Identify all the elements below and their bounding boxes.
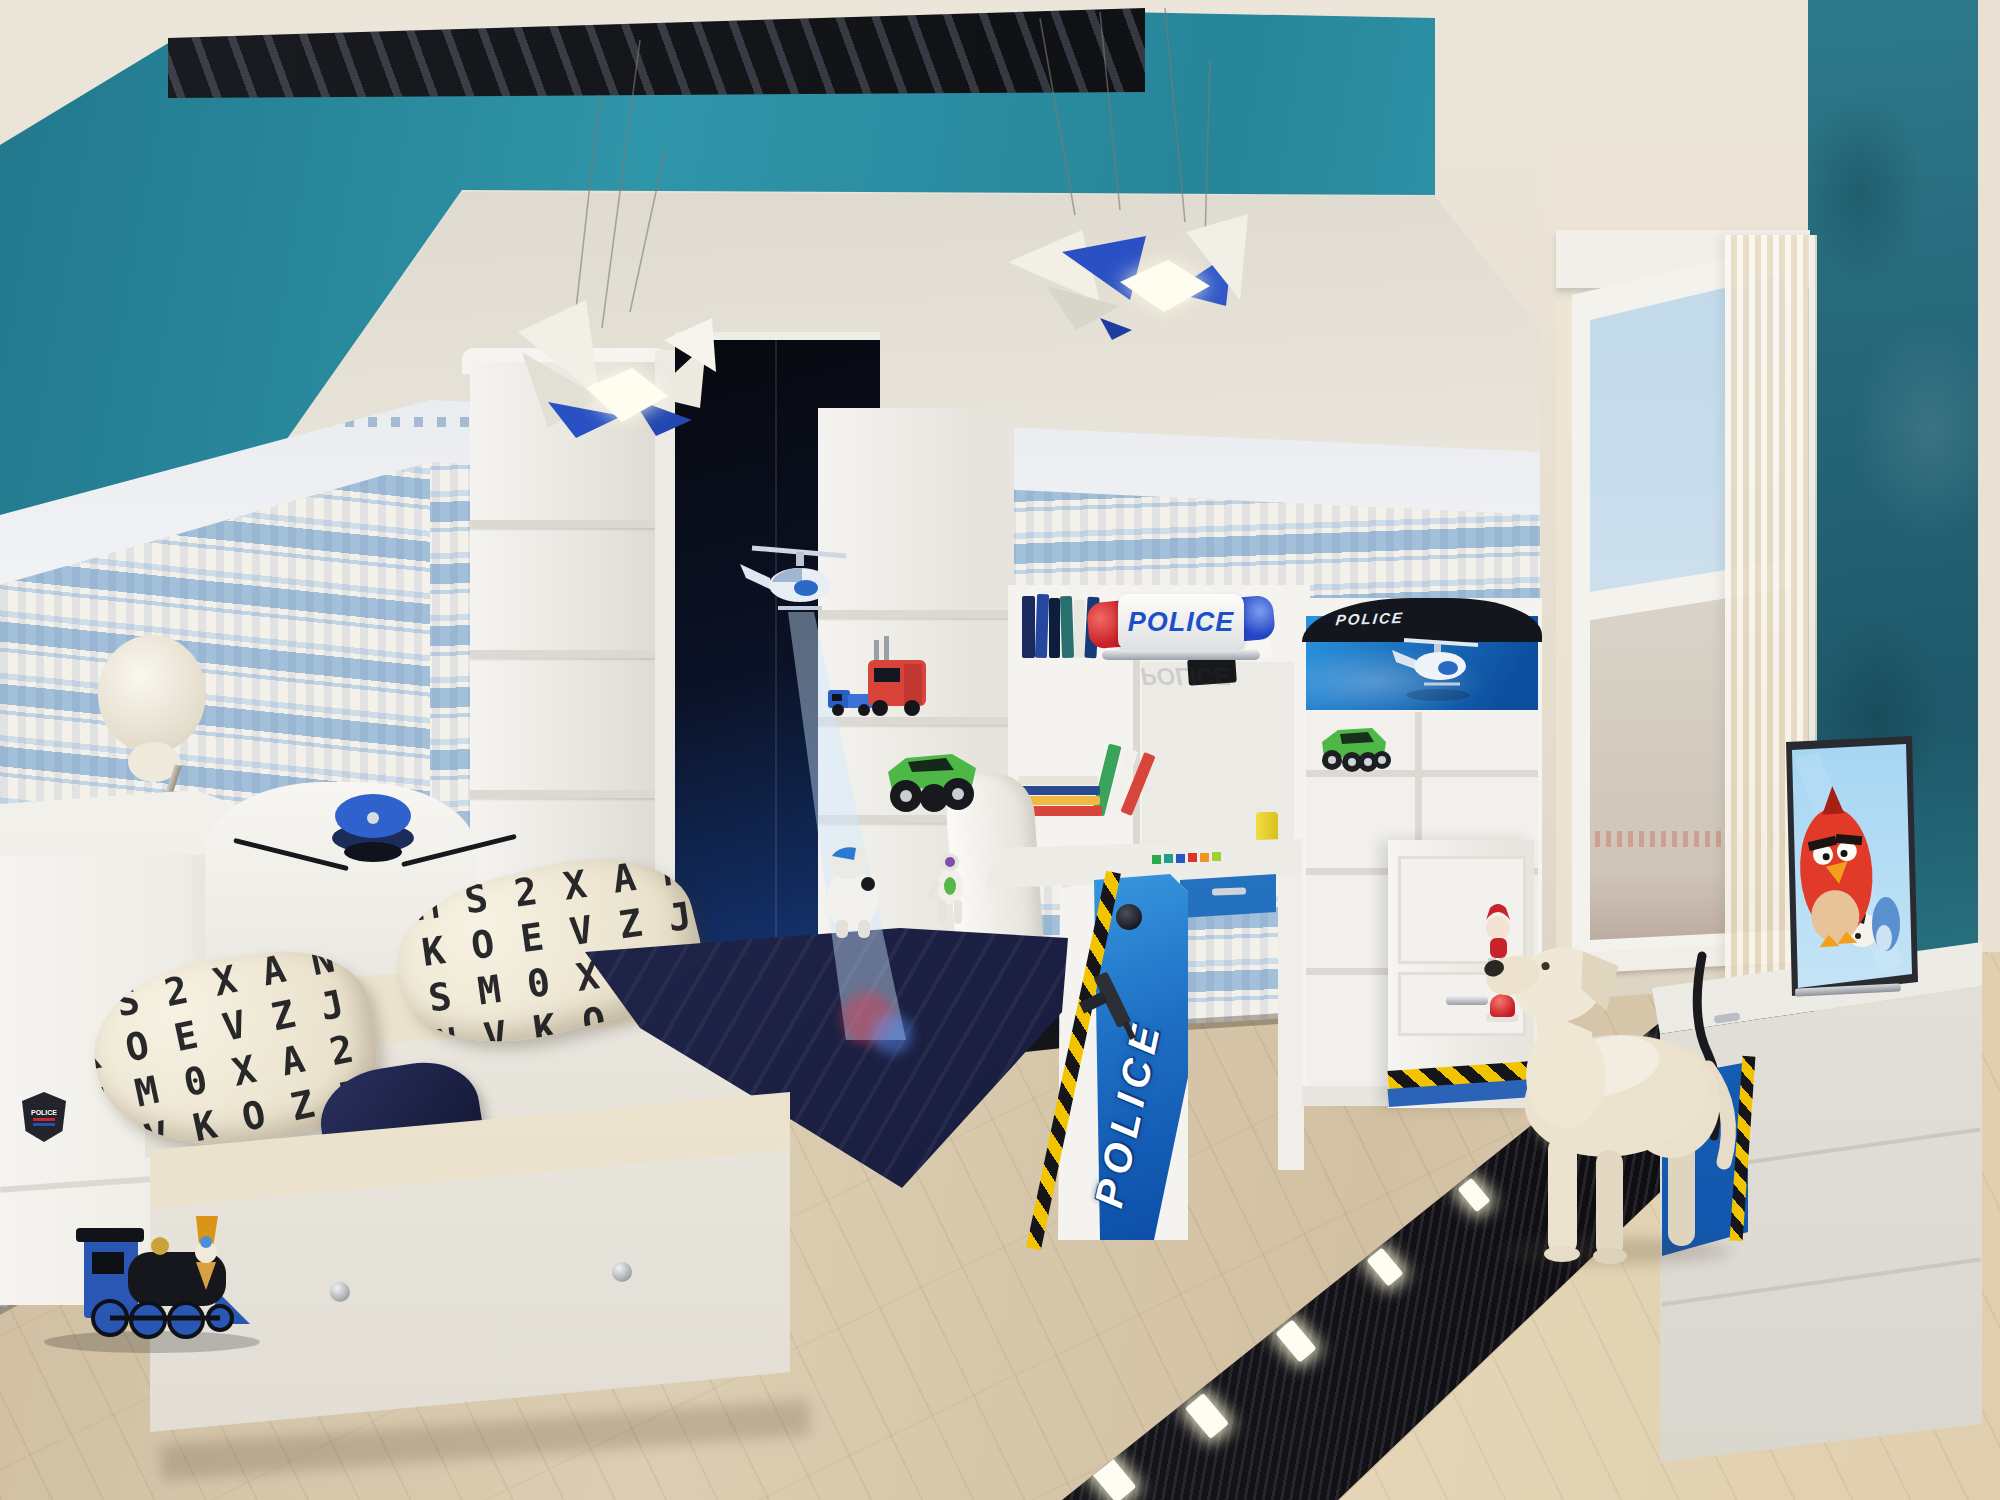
trundle-knob xyxy=(612,1262,632,1282)
cubby-shelf xyxy=(1306,770,1538,777)
badge-blue-stripe xyxy=(33,1123,55,1126)
bookcase-police-label: POLICE xyxy=(1335,609,1405,628)
marker xyxy=(1188,853,1197,862)
sign-chrome-bar xyxy=(1102,650,1260,660)
book xyxy=(1074,600,1085,658)
shelf xyxy=(470,790,670,798)
marker xyxy=(1152,855,1161,864)
shelf xyxy=(470,650,670,658)
marker xyxy=(1212,852,1221,861)
desk-police-side-panel: POLICE xyxy=(1058,872,1188,1240)
platform-light xyxy=(1543,1110,1574,1142)
book xyxy=(1022,596,1035,658)
panel-badge-icon xyxy=(1116,904,1142,930)
trundle-knob xyxy=(330,1282,350,1302)
marker xyxy=(1200,853,1209,862)
police-sign-label: POLICE xyxy=(1128,607,1235,638)
dresser-panel xyxy=(1398,856,1526,964)
police-sign: POLICE xyxy=(1118,594,1244,650)
book xyxy=(1060,596,1074,658)
dog-floor-shadow xyxy=(1500,1238,1730,1264)
badge-label: POLICE xyxy=(31,1109,57,1116)
shelf xyxy=(470,520,670,528)
platform-light xyxy=(1185,1393,1229,1439)
desk-drawer-handle xyxy=(1212,887,1246,895)
book xyxy=(1049,598,1060,658)
dresser-handle xyxy=(1446,996,1488,1005)
kids-police-bedroom-render: POLICE POLICE POLICE POLICE xyxy=(0,0,2000,1500)
shelf xyxy=(818,717,1014,725)
badge-red-stripe xyxy=(33,1118,55,1121)
desk-right-leg xyxy=(1278,878,1304,1170)
wall-sconce-shade xyxy=(98,635,206,753)
book xyxy=(1035,594,1049,658)
platform-light xyxy=(1275,1319,1316,1362)
book xyxy=(1018,776,1098,785)
toy-siren xyxy=(1490,994,1515,1017)
platform-light xyxy=(1366,1248,1403,1287)
platform-light xyxy=(1629,1042,1656,1070)
platform-light xyxy=(1457,1178,1490,1213)
marker xyxy=(1176,854,1185,863)
police-sign-reflection: POLICE xyxy=(1125,660,1245,690)
curtain-fold xyxy=(1556,300,1572,955)
marker xyxy=(1164,854,1173,863)
shelf xyxy=(818,610,1014,618)
